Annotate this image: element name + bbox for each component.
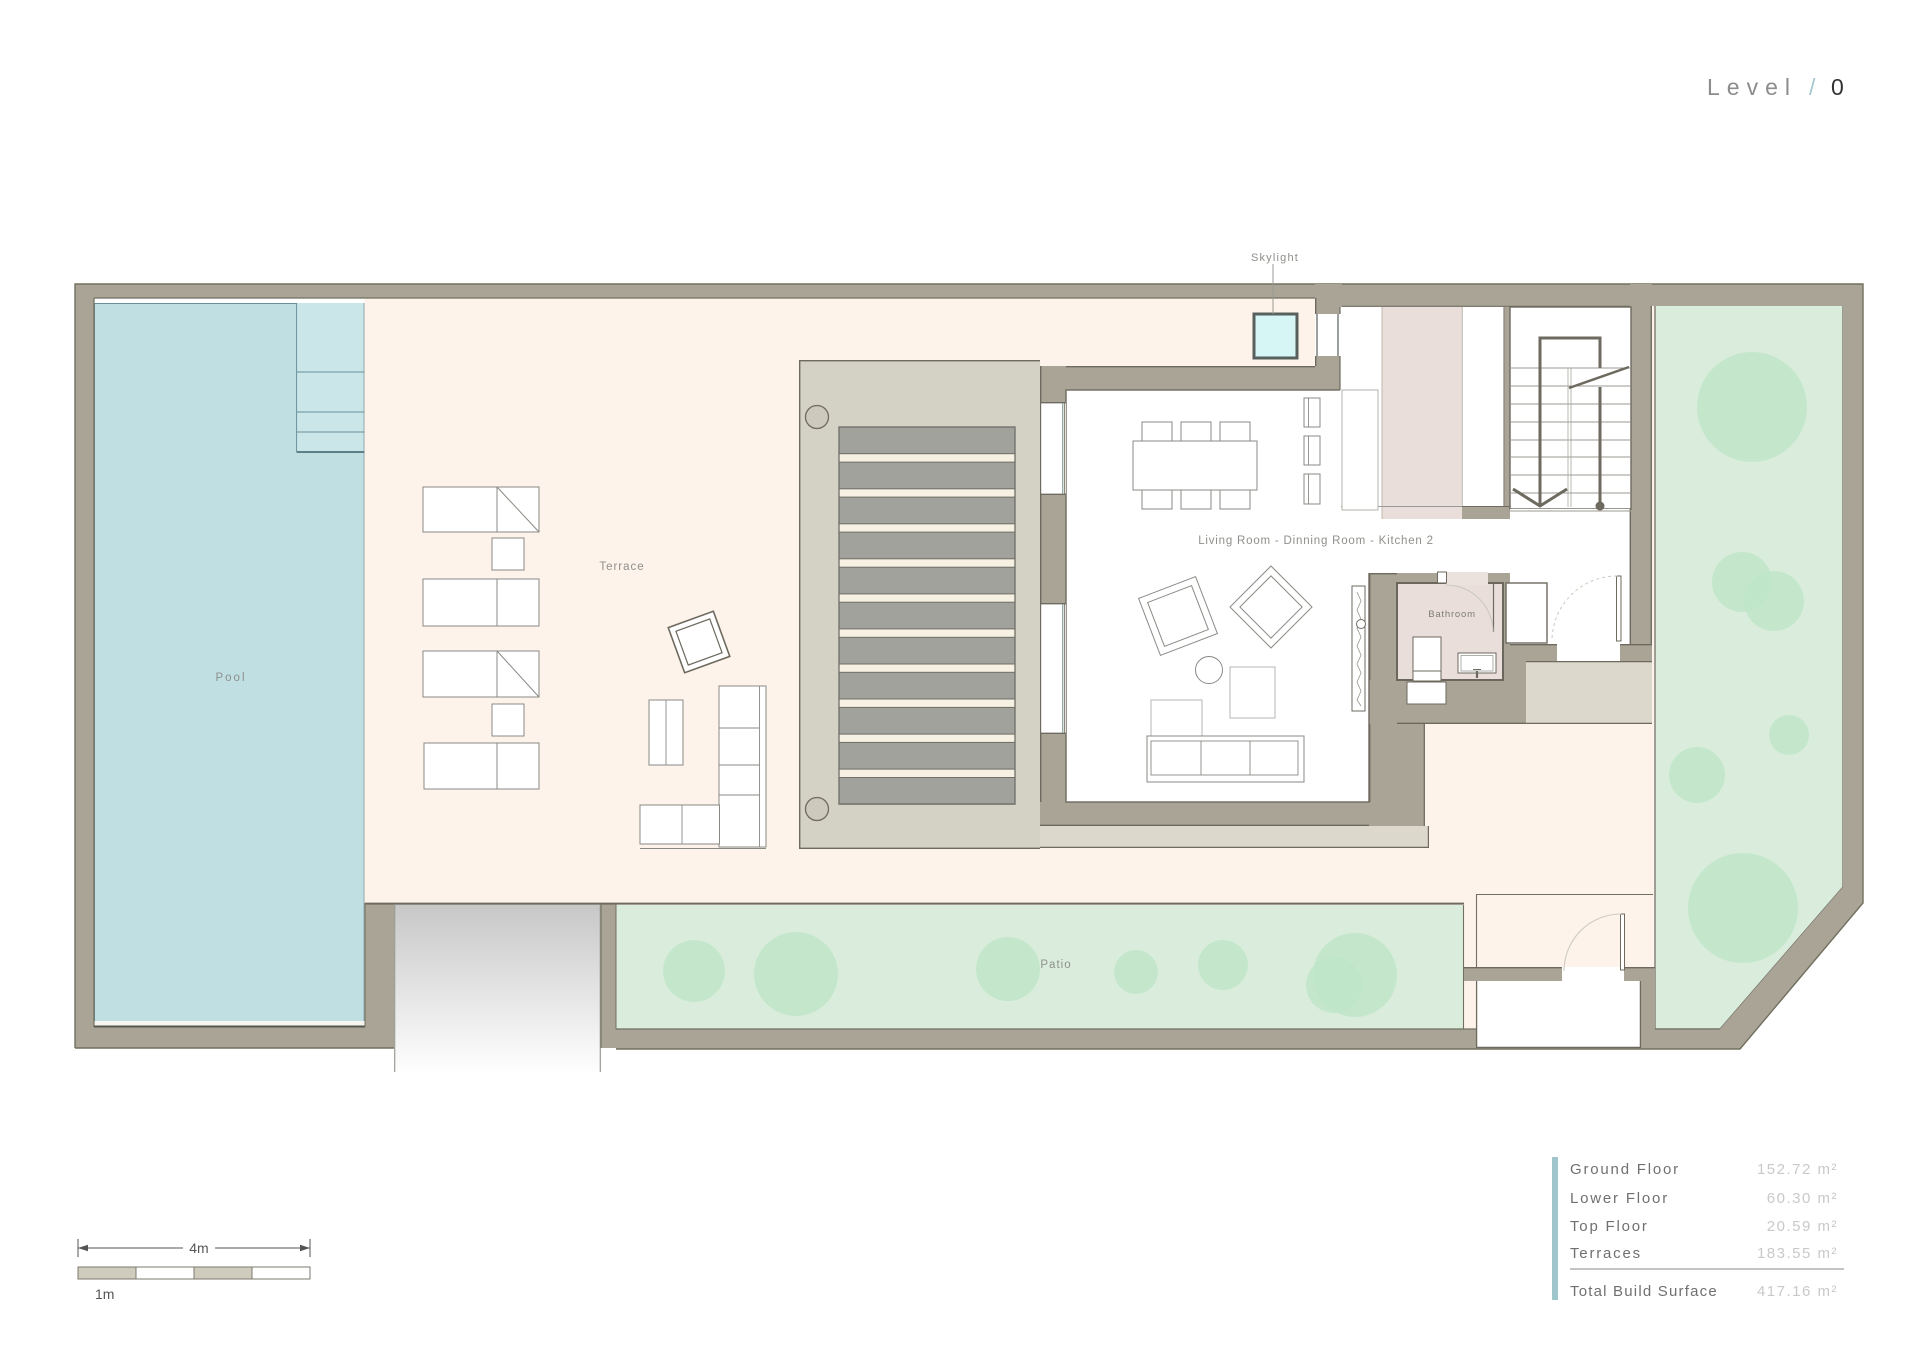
- svg-text:Terraces: Terraces: [1570, 1245, 1642, 1262]
- svg-text:Ground Floor: Ground Floor: [1570, 1161, 1680, 1178]
- svg-text:Top Floor: Top Floor: [1570, 1218, 1649, 1235]
- svg-text:0: 0: [1831, 74, 1844, 100]
- svg-text:60.30 m²: 60.30 m²: [1767, 1190, 1838, 1207]
- svg-text:Level: Level: [1707, 74, 1797, 100]
- svg-text:Patio: Patio: [1040, 959, 1071, 971]
- svg-text:4m: 4m: [189, 1240, 208, 1256]
- svg-text:183.55 m²: 183.55 m²: [1757, 1245, 1838, 1262]
- svg-text:Total Build Surface: Total Build Surface: [1570, 1283, 1718, 1300]
- svg-text:Pool: Pool: [215, 672, 246, 684]
- svg-text:417.16 m²: 417.16 m²: [1757, 1283, 1838, 1300]
- svg-text:20.59 m²: 20.59 m²: [1767, 1218, 1838, 1235]
- svg-text:Bathroom: Bathroom: [1428, 609, 1476, 620]
- svg-text:1m: 1m: [95, 1286, 114, 1302]
- svg-text:Lower Floor: Lower Floor: [1570, 1190, 1669, 1207]
- svg-text:Living Room - Dinning Room - K: Living Room - Dinning Room - Kitchen 2: [1198, 535, 1434, 547]
- svg-text:/: /: [1809, 74, 1816, 100]
- svg-text:Skylight: Skylight: [1251, 252, 1299, 264]
- svg-text:152.72 m²: 152.72 m²: [1757, 1161, 1838, 1178]
- svg-text:Terrace: Terrace: [599, 561, 644, 573]
